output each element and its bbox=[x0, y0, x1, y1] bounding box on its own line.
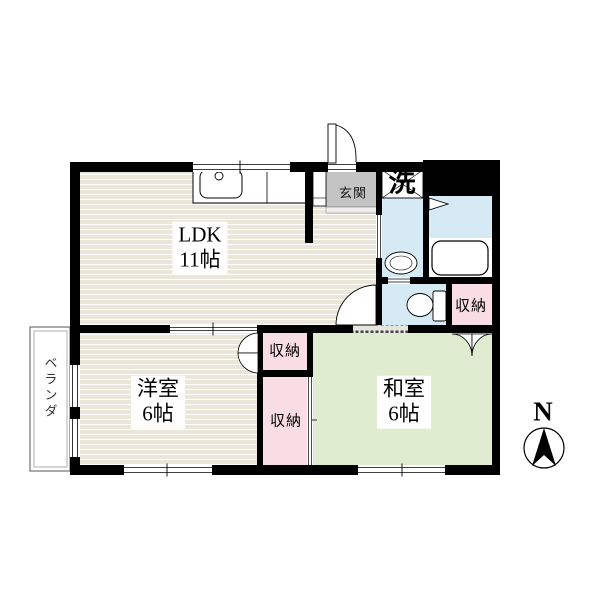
western-room-window bbox=[124, 464, 212, 477]
kitchen-window bbox=[193, 161, 290, 174]
entrance-doorway bbox=[328, 162, 356, 172]
toilet-door-gap bbox=[388, 277, 410, 284]
entrance-label: 玄関 bbox=[339, 183, 367, 202]
compass-rose bbox=[524, 428, 564, 468]
japanese-room-name: 和室 bbox=[383, 377, 425, 401]
japanese-room-label: 和室 6帖 bbox=[377, 376, 431, 429]
ldk-room-size: 11帖 bbox=[178, 248, 221, 273]
laundry-label: 洗 bbox=[389, 161, 416, 200]
ldk-room-name: LDK bbox=[178, 223, 221, 247]
floorplan-drawing bbox=[0, 0, 600, 600]
japanese-room-window bbox=[358, 464, 445, 477]
western-upper-storage-label: 収納 bbox=[269, 340, 301, 361]
western-room-size: 6帖 bbox=[137, 402, 179, 427]
western-lower-storage-label: 収納 bbox=[270, 410, 302, 431]
entrance-door-swing bbox=[328, 124, 356, 163]
western-room-label: 洋室 6帖 bbox=[131, 376, 185, 429]
veranda-label: ベランダ bbox=[41, 356, 60, 420]
washroom-door-gap bbox=[376, 215, 382, 258]
western-room-name: 洋室 bbox=[137, 377, 179, 401]
washbasin bbox=[385, 252, 417, 274]
entrance-step bbox=[326, 207, 377, 213]
ldk-room-label: LDK 11帖 bbox=[172, 222, 227, 275]
hall-storage-label: 収納 bbox=[455, 295, 487, 316]
japanese-room-size: 6帖 bbox=[383, 402, 425, 427]
bathtub bbox=[432, 241, 488, 275]
compass-north-label: N bbox=[533, 397, 553, 428]
japanese-room-threshold bbox=[353, 325, 408, 333]
floorplan: LDK 11帖 洋室 6帖 和室 6帖 収納 収納 収納 玄関 洗 ベランダ N bbox=[0, 0, 600, 600]
shoe-cabinet bbox=[313, 167, 326, 206]
kitchen-faucet bbox=[215, 172, 223, 180]
